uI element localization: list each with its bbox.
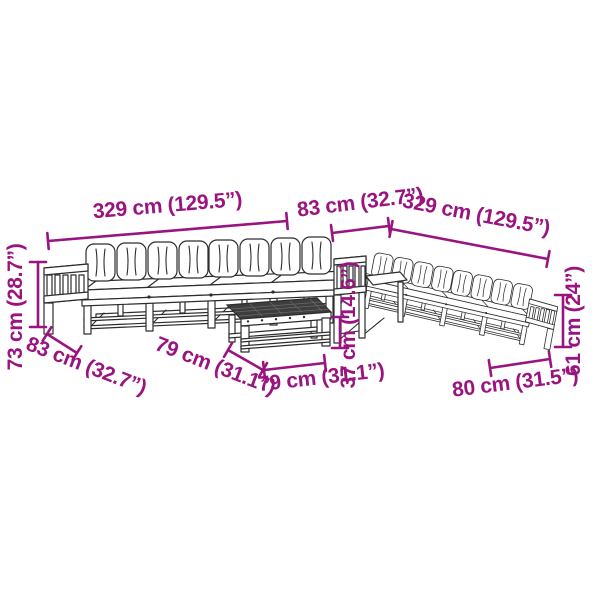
diagram-canvas: 329 cm (129.5”) 83 cm (32.7”) 329 cm (12… [0, 0, 600, 600]
coffee-table-illustration [227, 298, 331, 352]
dim-right-sofa-height: 61 cm (24”) [555, 266, 585, 376]
dim-left-sofa-width-label: 329 cm (129.5”) [92, 188, 243, 223]
dim-table-height: 37 cm (14.6”) [332, 262, 360, 389]
dim-left-sofa-depth: 83 cm (32.7”) [23, 327, 150, 399]
dim-table-width: 79 cm (31.1”) [257, 355, 386, 396]
dim-left-sofa-depth-label: 83 cm (32.7”) [23, 332, 150, 399]
dim-table-height-label: 37 cm (14.6”) [337, 262, 360, 389]
dim-right-sofa-width-label: 329 cm (129.5”) [401, 189, 552, 240]
right-sofa-illustration [354, 250, 562, 349]
dim-right-sofa-height-label: 61 cm (24”) [562, 266, 585, 376]
dim-right-sofa-width: 329 cm (129.5”) [390, 189, 552, 267]
dim-right-sofa-depth-label: 80 cm (31.5”) [451, 363, 580, 401]
dim-right-sofa-depth: 80 cm (31.5”) [451, 351, 580, 402]
furniture-dimension-diagram: 329 cm (129.5”) 83 cm (32.7”) 329 cm (12… [0, 0, 600, 600]
dim-corner-width-line [331, 218, 390, 241]
